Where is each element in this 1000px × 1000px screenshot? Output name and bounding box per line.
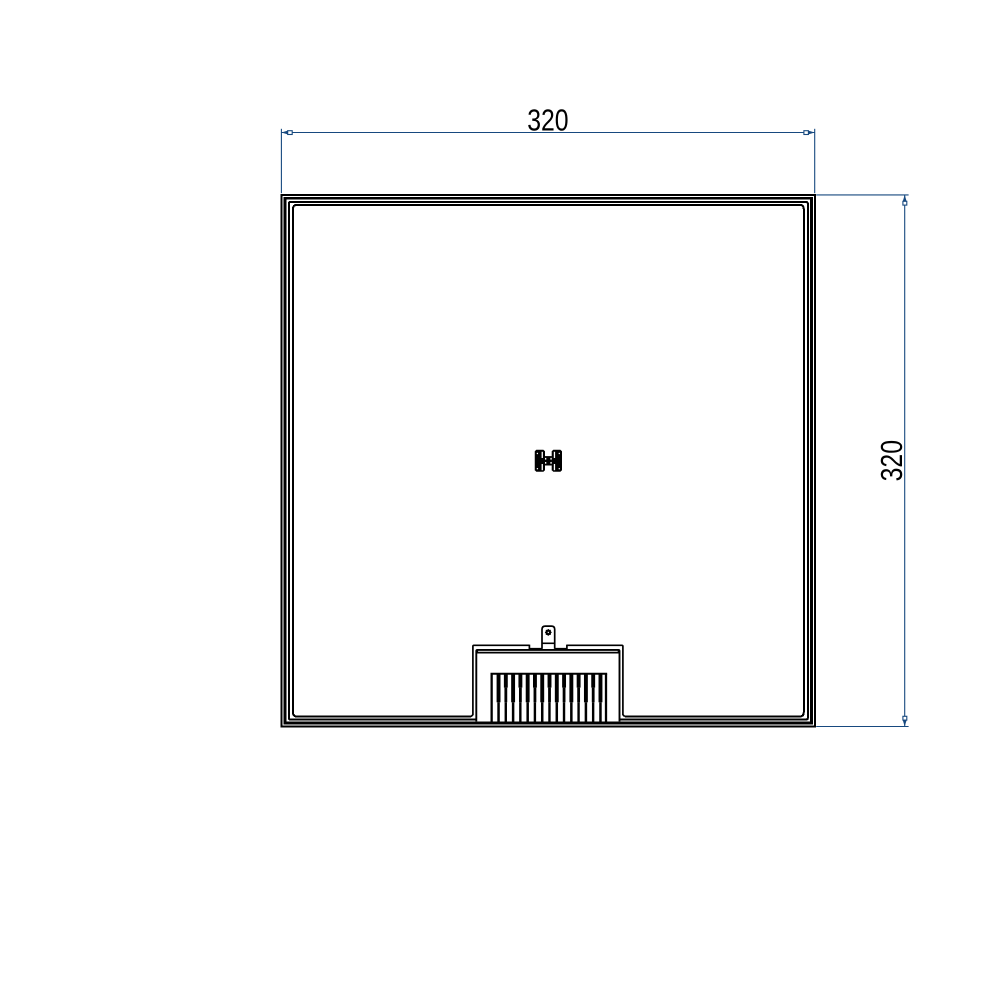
svg-text:320: 320 xyxy=(875,440,909,481)
svg-text:320: 320 xyxy=(527,103,568,137)
